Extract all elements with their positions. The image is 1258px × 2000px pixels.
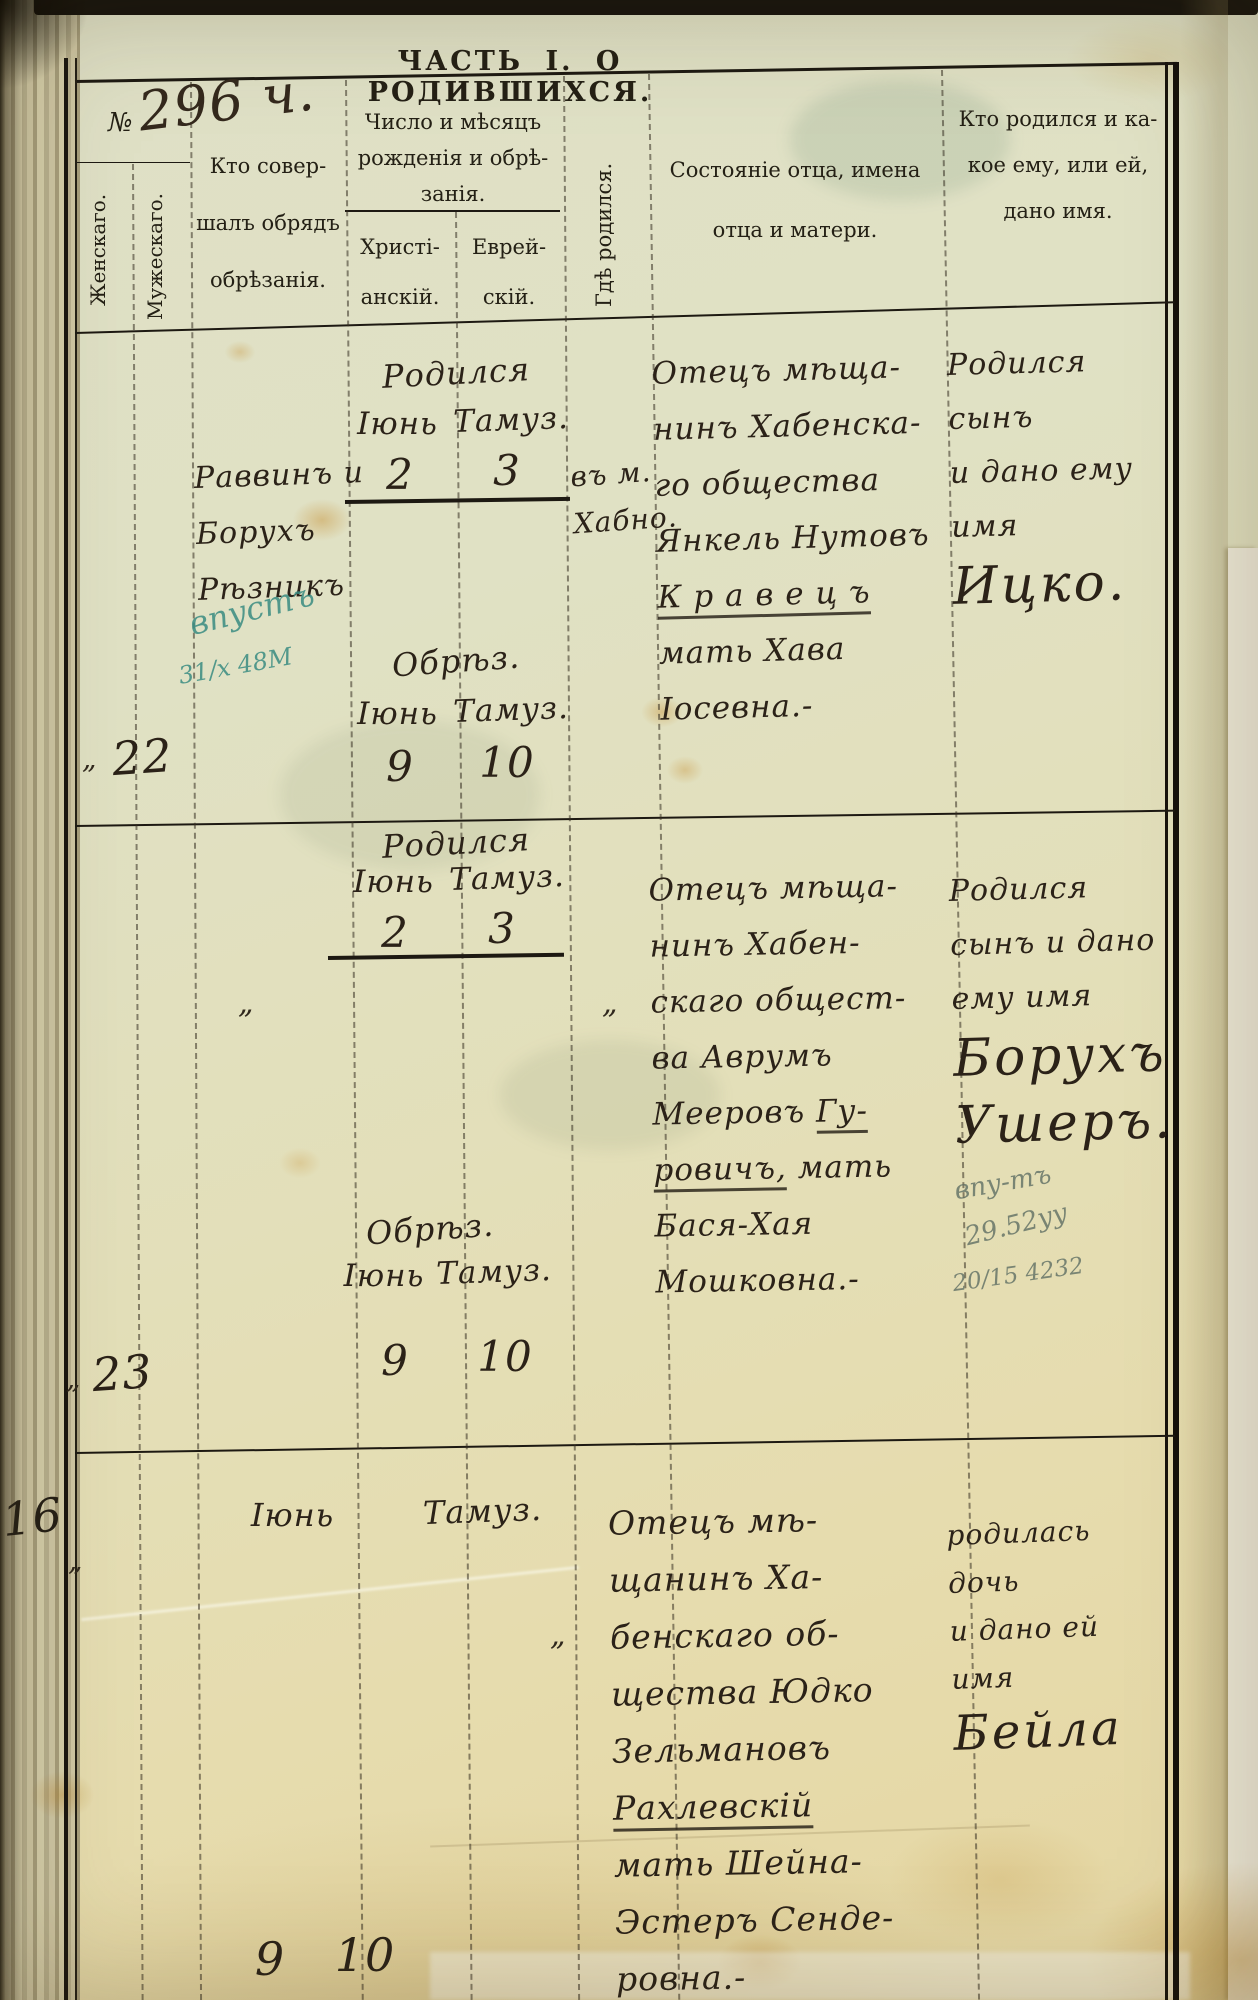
scanned-register-page: ЧАСТЬ I. О РОДИВШИХСЯ. № 296 ч. Женскаго… (0, 0, 1258, 2000)
column-header-who-born: Кто родился и ка- кое ему, или ей, дано … (944, 96, 1172, 234)
folio-number: 16 (0, 1487, 65, 1547)
column-header-male: Мужескаго. (143, 160, 167, 320)
entry1-circumcision-month-christian: Іюнь (340, 696, 455, 732)
entry2-father-column: Отецъ мѣща-нинъ Хабен-скаго общест-ва Ав… (648, 857, 952, 1310)
entry2-name-column: Родилсясынъ и даноему имяБорухъУшеръ. (948, 859, 1181, 1161)
entry2-birth-month-christian: Іюнь (336, 864, 451, 900)
column-header-where-born: Гдѣ родился. (592, 92, 616, 307)
table-left-border (64, 58, 68, 2000)
entry1-birth-month-jewish: Тамуз. (451, 400, 570, 440)
entry3-father-column: Отецъ мѣ-щанинъ Ха-бенскаго об-щества Юд… (608, 1489, 929, 2000)
entry3-circumcision-day-jewish: 10 (305, 1928, 425, 1982)
entry2-circumcision-label: Обрѣз. (329, 1203, 531, 1255)
column-header-jewish: Еврей- скій. (457, 222, 561, 322)
column-header-female: Женскаго. (86, 164, 110, 306)
column-header-father: Состояніе отца, имена отца и матери. (650, 140, 940, 260)
entry2-birth-day-christian: 2 (340, 908, 450, 957)
row-separator-2 (75, 1435, 1175, 1454)
book-binding-edge (0, 0, 80, 2000)
entry2-birth-month-jewish: Тамуз. (447, 858, 566, 898)
entry1-birth-label: Родился (349, 348, 563, 397)
entry3-name-column: родилась дочьи дано ейимяБейла (946, 1504, 1180, 1765)
entry1-circumcision-day-jewish: 10 (448, 738, 566, 787)
entry1-circumcision-month-jewish: Тамуз. (451, 690, 570, 730)
entry2-row-number: 23 (90, 1344, 154, 1402)
column-line-jewish-whereborn (563, 76, 580, 2000)
entry2-ditto-tick: „ (66, 1362, 81, 1395)
entry2-archival-annotation-line1: впу-тъ (952, 1160, 1053, 1207)
entry1-circumcision-day-christian: 9 (345, 742, 455, 791)
right-paper-edge (1180, 0, 1228, 2000)
row-separator-1 (75, 810, 1175, 827)
entry2-officiant-ditto: „ (238, 986, 254, 1021)
entry2-where-born-ditto: „ (602, 986, 618, 1021)
entry1-name-column: Родился сынъи дано емуимяИцко. (946, 333, 1178, 622)
column-header-officiant: Кто совер- шалъ обрядъ обрѣзанія. (193, 138, 343, 309)
entry2-circumcision-month-jewish: Тамуз. (433, 1252, 554, 1292)
column-line-female-male (132, 164, 144, 2000)
top-photo-bar (34, 0, 1258, 15)
column-header-dates: Число и мѣсяцъ рожденія и обрѣ- занія. (347, 104, 559, 212)
entry2-archival-annotation-line3: 20/15 4232 (951, 1253, 1085, 1297)
entry3-birth-month-christian: Іюнь (235, 1496, 350, 1534)
entry1-father-column: Отецъ мѣща-нинъ Хабенска-го обществаЯнке… (651, 338, 953, 738)
column-header-christian: Христі- анскій. (347, 222, 453, 322)
entry2-birth-day-jewish: 3 (443, 904, 561, 953)
entry1-birth-day-jewish: 3 (448, 446, 566, 495)
entry3-where-born-ditto: „ (550, 1618, 566, 1653)
page-title: ЧАСТЬ I. О РОДИВШИХСЯ. (320, 46, 700, 108)
register-number-handwritten: 296 ч. (135, 59, 318, 143)
entry1-birth-month-christian: Іюнь (340, 406, 455, 442)
entry2-circumcision-day-jewish: 10 (445, 1332, 565, 1381)
right-torn-backing (1228, 548, 1258, 2000)
entry2-circumcision-day-christian: 9 (340, 1336, 450, 1385)
entry3-birth-month-jewish: Тамуз. (419, 1490, 545, 1532)
entry2-circumcision-month-christian: Іюнь (328, 1258, 440, 1294)
no-cell-rule (77, 162, 190, 163)
entry1-birth-day-christian: 2 (345, 450, 455, 499)
table-left-border-inner (75, 58, 77, 2000)
entry1-circumcision-label: Обрѣз. (349, 635, 563, 688)
entry1-row-number: 22 (110, 728, 174, 786)
entry3-ditto-tick: „ (68, 1544, 83, 1577)
entry2-archival-annotation-line2: 29.52уу (962, 1198, 1071, 1252)
crease-line (81, 1566, 579, 1621)
column-header-no: № (108, 108, 133, 138)
entry1-ditto-tick: „ (82, 742, 97, 775)
column-line-male-officiant (190, 82, 202, 2000)
